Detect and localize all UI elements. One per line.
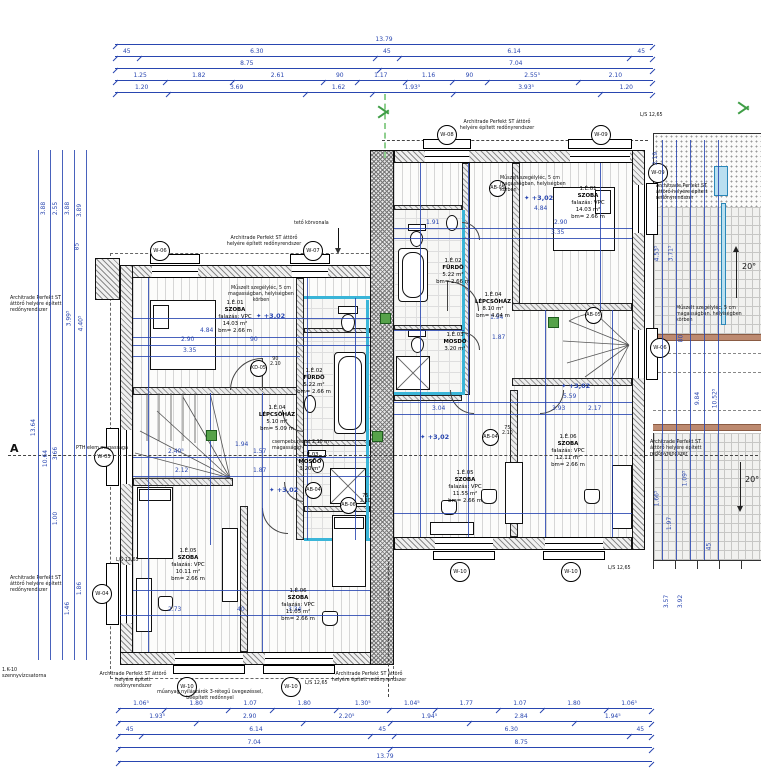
note-skirting: Műszelt szegélyléc, 5 cm magasságban, he… [676, 306, 746, 324]
plant-icon [376, 106, 392, 120]
dim-line [394, 414, 632, 415]
level-marker: ✦ +3,02 [256, 312, 285, 320]
dim-chain-row: 7.04 8.75 [118, 739, 652, 748]
window [632, 185, 645, 233]
room-area: 8.10 m² [462, 306, 524, 313]
dim-segment: 1.77 [435, 700, 499, 709]
dim-label: 1.97 [666, 517, 673, 530]
dim-line [133, 345, 370, 346]
note-shutter: Architrade Perfekt ST áttörő helyére épí… [10, 576, 70, 594]
dim-segment: 2.61 [232, 72, 322, 81]
dim-line [120, 615, 370, 616]
plant-icon [736, 102, 752, 116]
window-bubble: W-09 [591, 125, 611, 145]
room-name: FÜRDŐ [428, 265, 478, 272]
window-id: W-10 [564, 569, 577, 575]
dim-segment: 45 [118, 726, 141, 735]
room-area: 3.20 m² [288, 466, 332, 473]
room-name: MOSDÓ [430, 339, 480, 346]
room-area: 5.10 m² [246, 419, 308, 426]
level-marker: ✦ +3,02 [269, 486, 298, 494]
floor-plan-drawing: OTTHON CENTRUM 20° 20° [0, 0, 761, 775]
window-id: W-10 [284, 684, 297, 690]
dim-label: 1.66⁵ [653, 491, 660, 507]
dim-label: 3.04 [432, 405, 445, 412]
dim-segment: 2.55⁵ [487, 72, 578, 81]
window-id: W-09 [594, 132, 607, 138]
dim-segment: 1.20 [115, 84, 168, 93]
dim-segment: 3.93⁵ [453, 84, 600, 93]
dim-label: 4.53⁵ [653, 246, 660, 262]
window [265, 652, 333, 665]
dim-line [394, 238, 632, 239]
dim-chain-row: 45 6.30 45 6.14 45 [115, 48, 653, 57]
dim-segment: 1.93⁵ [372, 84, 452, 93]
dim-segment: 45 [629, 48, 653, 57]
room-name: SZOBA [268, 595, 328, 602]
note-shutter: Architrade Perfekt ST áttörő helyére épí… [458, 120, 536, 132]
dim-line [210, 393, 211, 545]
roof-ridge-band [653, 424, 761, 431]
dim-label: 10.64 [42, 450, 49, 467]
room-id: 1.É.05 [435, 470, 495, 477]
window-id: W-07 [306, 248, 319, 254]
pillow [334, 517, 364, 529]
dim-segment: 90 [452, 72, 486, 81]
dim-segment: 1.93⁵ [118, 713, 196, 722]
room-area: 11.05 m² [268, 609, 328, 616]
dim-segment: 7.04 [118, 739, 390, 748]
dim-label: 2.17 [588, 405, 601, 412]
dim-label: 9.84 [694, 392, 701, 405]
window-bubble: W-10 [281, 677, 301, 697]
dim-segment: 6.30 [139, 48, 375, 57]
chair [584, 489, 600, 504]
dim-label: 10.52⁵ [711, 389, 718, 409]
window-id: W-04 [95, 591, 108, 597]
dim-segment: 8.75 [390, 739, 652, 748]
note-shutter: Architrade Perfekt ST áttörő helyére épí… [225, 236, 303, 248]
dim-line [662, 140, 663, 560]
slope-label: 20° [745, 475, 759, 484]
green-marker [206, 430, 217, 441]
dim-chain-row: 13.79 [118, 753, 652, 762]
note-ls: L/S 12,65 [640, 113, 663, 118]
dim-line [704, 140, 705, 560]
level-star-icon: ✦ [269, 486, 274, 494]
dim-line [718, 140, 719, 560]
room-name: SZOBA [158, 555, 218, 562]
door-bubble: AB-04 [482, 429, 499, 446]
section-marker: A [10, 442, 19, 455]
section-line [8, 455, 758, 456]
room-area: 12.11 m² [538, 455, 598, 462]
room-area: 5.22 m² [428, 272, 478, 279]
dim-segment: 6.14 [141, 726, 370, 735]
room-id: 1.É.06 [268, 588, 328, 595]
dim-label: 3.89 [76, 204, 83, 217]
room-name: FÜRDŐ [292, 375, 336, 382]
dim-segment: 1.07 [498, 700, 542, 709]
wall-left-bottom [120, 652, 382, 665]
dim-segment: 1.94⁵ [574, 713, 653, 722]
level-value: +3,02 [277, 486, 298, 494]
room-label: 1.É.05 SZOBA falazás: VPC 11.55 m² bm= 2… [435, 470, 495, 505]
window [435, 537, 493, 550]
dim-segment: 6.30 [394, 726, 629, 735]
axis-line [388, 557, 389, 697]
room-label: 1.É.04 LÉPCSŐHÁZ 5.10 m² bm= 5.09 m [246, 405, 308, 433]
dim-label: 2.73 [168, 606, 181, 613]
dim-label: 80 [677, 335, 684, 343]
dim-line [676, 140, 677, 560]
partition [240, 506, 248, 652]
dim-label: 1.87 [492, 334, 505, 341]
door-size: 902.10 [270, 357, 281, 368]
dim-label: 1.09⁵ [681, 471, 688, 487]
dim-label: 85 [73, 243, 80, 251]
room-wall: falazás: VPC [268, 602, 328, 609]
room-wall: falazás: VPC [435, 484, 495, 491]
door-id: AB-04 [483, 435, 497, 440]
room-area: 5.22 m² [292, 382, 336, 389]
room-name: SZOBA [435, 477, 495, 484]
dim-segment: 6.14 [399, 48, 630, 57]
dim-segment: 1.94⁵ [390, 713, 469, 722]
partition [304, 506, 370, 512]
window [175, 652, 243, 665]
window-id: W-06 [653, 345, 666, 351]
room-wall: falazás: VPC [558, 200, 618, 207]
room-label: 1.É.03 MOSDÓ 3.20 m² [430, 332, 480, 353]
dim-label: 3.93 [552, 405, 565, 412]
roof-ridge-band [653, 334, 761, 341]
window-bubble: W-06 [650, 338, 670, 358]
slope-arrow [736, 252, 737, 298]
room-label: 1.É.06 SZOBA falazás: VPC 12.11 m² bm= 2… [538, 434, 598, 469]
dim-line [74, 150, 75, 660]
level-value: +3,02 [532, 194, 553, 202]
level-star-icon: ✦ [256, 312, 261, 320]
dim-segment: 90 [323, 72, 357, 81]
partition [512, 303, 632, 311]
note-shutter: Architrade Perfekt ST áttörő helyére épí… [330, 672, 408, 684]
room-height: bm= 2.66 m [158, 576, 218, 583]
dim-line [394, 228, 632, 229]
dim-line [394, 330, 464, 331]
roof-edge-ticks [653, 560, 761, 569]
boundary-line [384, 94, 386, 158]
dim-line [86, 150, 87, 660]
partition [394, 205, 462, 210]
roof-hidden-edge [653, 410, 761, 411]
dim-segment: 1.30⁵ [336, 700, 389, 709]
room-label: 1.É.01 SZOBA falazás: VPC 14.03 m² bm= 2… [558, 186, 618, 221]
dim-segment: 1.17 [357, 72, 405, 81]
window-bubble: W-09 [648, 163, 668, 183]
window [632, 330, 645, 378]
dim-line [133, 476, 370, 477]
room-wall: falazás: VPC [538, 448, 598, 455]
dim-segment: 45 [115, 48, 139, 57]
dim-label: 3.66 [52, 447, 59, 460]
room-height: bm= 2.66 m [538, 462, 598, 469]
note-sewer: 1.K-10 szennyvízcsatorna [2, 668, 60, 680]
room-name: SZOBA [558, 193, 618, 200]
level-value: +3,02 [428, 433, 449, 441]
room-wall: falazás: VPC [158, 562, 218, 569]
door-bubble: KD-05 [250, 360, 267, 377]
door-bubble: AB-04 [305, 482, 322, 499]
note-ls: L/S 12,65 [116, 558, 139, 563]
door-id: AB-04 [306, 488, 320, 493]
window-bubble: W-06 [150, 241, 170, 261]
dim-label: 1.87 [253, 467, 266, 474]
room-height: bm= 2.66 m [205, 328, 265, 335]
dim-line [612, 310, 613, 537]
dim-segment: 2.90 [196, 713, 303, 722]
door-id: AB-05 [586, 313, 600, 318]
room-name: MOSDÓ [288, 459, 332, 466]
dim-segment: 1.04⁵ [389, 700, 434, 709]
room-area: 3.20 m² [430, 346, 480, 353]
window-bubble: W-10 [450, 562, 470, 582]
door-height: 2.10 [502, 431, 513, 436]
dim-segment: 2.20⁵ [303, 713, 390, 722]
room-area: 14.03 m² [558, 207, 618, 214]
window-sill [543, 551, 605, 560]
window-id: W-08 [440, 132, 453, 138]
room-id: 1.É.02 [428, 258, 478, 265]
window [152, 265, 198, 278]
room-label: 1.É.04 LÉPCSŐHÁZ 8.10 m² bm= 4.04 m [462, 292, 524, 320]
window [545, 537, 603, 550]
room-height: bm= 2.66 m [292, 389, 336, 396]
dim-label: 40 [237, 606, 245, 613]
dim-label: 13.64 [30, 419, 37, 436]
room-id: 1.É.04 [246, 405, 308, 412]
dim-line [133, 590, 370, 591]
room-height: bm= 4.04 m [462, 313, 524, 320]
slope-label: 20° [742, 262, 756, 271]
dim-chain-row: 13.79 [115, 36, 653, 45]
room-height: bm= 5.09 m [246, 426, 308, 433]
dim-line [545, 310, 546, 537]
room-height: bm= 2.66 m [558, 214, 618, 221]
door-size: 752.10 [360, 494, 371, 505]
dim-segment: 1.25 [115, 72, 165, 81]
dim-chain-row: 1.25 1.82 2.61 90 1.17 1.16 90 2.55⁵ 2.1… [115, 72, 653, 81]
door-id: KD-05 [251, 366, 266, 371]
door-id: AB-06 [341, 503, 355, 508]
room-label: 1.É.06 SZOBA falazás: VPC 11.05 m² bm= 2… [268, 588, 328, 623]
note-ls: L/S 12,65 [305, 681, 328, 686]
dim-label: 90 [250, 336, 258, 343]
pillow [139, 489, 171, 501]
dim-chain-row: 8.75 7.04 [115, 60, 653, 69]
dim-segment: 1.80 [272, 700, 336, 709]
dim-segment: 8.75 [115, 60, 379, 69]
window-bubble: W-08 [437, 125, 457, 145]
window-id: W-10 [453, 569, 466, 575]
dim-chain-row: 1.20 3.69 1.62 1.93⁵ 3.93⁵ 1.20 [115, 84, 653, 93]
green-marker [548, 317, 559, 328]
door-bubble: AB-05 [585, 307, 602, 324]
bathtub-inner [338, 356, 362, 430]
dim-label: 2.40⁵ [168, 448, 184, 455]
dim-segment: 45 [629, 726, 652, 735]
dim-label: 1.94 [235, 441, 248, 448]
level-marker: ✦ +3,02 [561, 382, 590, 390]
dim-label: 2.55 [52, 202, 59, 215]
dim-segment: 13.79 [118, 753, 652, 762]
dim-label: 3.35 [183, 347, 196, 354]
dim-line [133, 457, 370, 458]
desk [505, 462, 523, 524]
room-height: bm= 2.66 m [435, 498, 495, 505]
dim-label: 4.40⁵ [77, 316, 84, 332]
slope-arrow [740, 462, 741, 506]
dim-label: 45 [705, 543, 712, 551]
door-height: 2.10 [270, 362, 281, 367]
note-shutter: Architrade Perfekt ST áttörő helyére épí… [96, 672, 170, 690]
dim-label: 1.57 [253, 448, 266, 455]
dim-label: 5.59 [563, 393, 576, 400]
dim-label: 2.12 [175, 467, 188, 474]
pillow [153, 305, 169, 329]
level-star-icon: ✦ [420, 433, 425, 441]
dim-label: 3.88 [64, 202, 71, 215]
window-sill [173, 665, 245, 674]
dim-segment: 1.82 [165, 72, 232, 81]
dim-segment: 1.80 [164, 700, 228, 709]
window [570, 150, 630, 163]
dim-label: 3.35 [551, 229, 564, 236]
room-id: 1.É.03 [430, 332, 480, 339]
dim-line [38, 150, 39, 660]
level-star-icon: ✦ [561, 382, 566, 390]
wall-chimney [95, 258, 120, 300]
room-id: 1.É.02 [292, 368, 336, 375]
note-tiling: csempeburkolat 2,10 m magasságig [272, 440, 332, 452]
room-area: 10.11 m² [158, 569, 218, 576]
dim-label: 3.71⁵ [667, 246, 674, 262]
roof-hidden-edge [653, 353, 761, 354]
dim-segment: 3.69 [168, 84, 304, 93]
window-id: W-06 [153, 248, 166, 254]
room-name: SZOBA [538, 441, 598, 448]
note-shutter: Architrade Perfekt ST áttörő helyére épí… [656, 184, 716, 202]
dim-segment: 1.80 [542, 700, 606, 709]
skylight [714, 166, 728, 196]
dim-chain-row: 1.93⁵ 2.90 2.20⁵ 1.94⁵ 2.84 1.94⁵ [118, 713, 652, 722]
door-height: 2.10 [360, 499, 371, 504]
note-skirting: Műszelt szegélyléc, 5 cm magasságban, he… [500, 176, 566, 194]
desk [136, 578, 152, 632]
dim-line [62, 150, 63, 660]
note-ls: L/S 12,65 [608, 566, 631, 571]
dim-label: 1.86 [76, 582, 83, 595]
window-bubble: W-07 [303, 241, 323, 261]
room-id: 1.É.01 [558, 186, 618, 193]
dim-label: 3.99⁵ [65, 311, 72, 327]
level-value: +3,02 [569, 382, 590, 390]
note-shutter: Architrade Perfekt ST áttörő helyére épí… [10, 296, 70, 314]
dim-label: 2.90 [181, 336, 194, 343]
room-id: 1.É.04 [462, 292, 524, 299]
window-sill [263, 665, 335, 674]
room-area: 14.03 m² [205, 321, 265, 328]
dim-chain-row: 45 6.14 45 6.30 45 [118, 726, 652, 735]
dim-segment: 1.16 [405, 72, 453, 81]
window [425, 150, 469, 163]
dim-line [690, 140, 691, 560]
dim-segment: 7.04 [379, 60, 653, 69]
window-bubble: W-04 [92, 584, 112, 604]
dim-label: 1.46 [64, 602, 71, 615]
dim-label: 2.19 [652, 152, 659, 165]
room-name: LÉPCSŐHÁZ [462, 299, 524, 306]
room-height: bm= 2.66 m [428, 279, 478, 286]
shower [396, 356, 430, 390]
dim-line [394, 402, 632, 403]
dim-segment: 1.20 [600, 84, 653, 93]
dim-segment: 1.06⁵ [606, 700, 652, 709]
room-label: 1.É.02 FÜRDŐ 5.22 m² bm= 2.66 m [428, 258, 478, 286]
dim-label: 1.00 [52, 512, 59, 525]
green-marker [372, 431, 383, 442]
level-marker: ✦ +3,02 [420, 433, 449, 441]
slope-arrowhead [737, 506, 743, 512]
window [120, 430, 133, 484]
partition [304, 328, 370, 333]
dim-label: 3.92 [677, 595, 684, 608]
toilet-tank [408, 330, 426, 337]
window-bubble: W-10 [561, 562, 581, 582]
dim-segment: 1.06⁵ [118, 700, 164, 709]
window-sill [433, 551, 495, 560]
dim-label: 3.57 [663, 595, 670, 608]
dim-line [420, 163, 421, 537]
dim-segment: 13.79 [115, 36, 653, 45]
dim-segment: 2.10 [578, 72, 653, 81]
window [292, 265, 328, 278]
dim-line [50, 150, 51, 660]
room-label: 1.É.05 SZOBA falazás: VPC 10.11 m² bm= 2… [158, 548, 218, 583]
note-skirting: Műszelt szegélyléc, 5 cm magasságban, he… [225, 286, 297, 304]
wall-party [370, 150, 394, 665]
room-height: bm= 2.66 m [268, 616, 328, 623]
room-label: 1.É.02 FÜRDŐ 5.22 m² bm= 2.66 m [292, 368, 336, 396]
leader-arrowhead [335, 248, 341, 254]
dim-segment: 2.84 [469, 713, 574, 722]
slope-arrowhead [733, 246, 739, 252]
room-area: 11.55 m² [435, 491, 495, 498]
dim-label: 3.88 [40, 202, 47, 215]
room-name: LÉPCSŐHÁZ [246, 412, 308, 419]
dim-chain-row: 1.06⁵ 1.80 1.07 1.80 1.30⁵ 1.04⁵ 1.77 1.… [118, 700, 652, 709]
leader-line [338, 228, 339, 248]
dim-line [148, 278, 149, 652]
door-bubble: AB-06 [340, 497, 357, 514]
level-marker: ✦ +3,02 [524, 194, 553, 202]
level-star-icon: ✦ [524, 194, 529, 202]
note-roof-outline: tető körvonala [294, 221, 329, 226]
wet-wall-strip [304, 296, 370, 299]
dim-segment: 45 [375, 48, 399, 57]
door-size: 752.10 [502, 426, 513, 437]
desk [612, 465, 632, 529]
